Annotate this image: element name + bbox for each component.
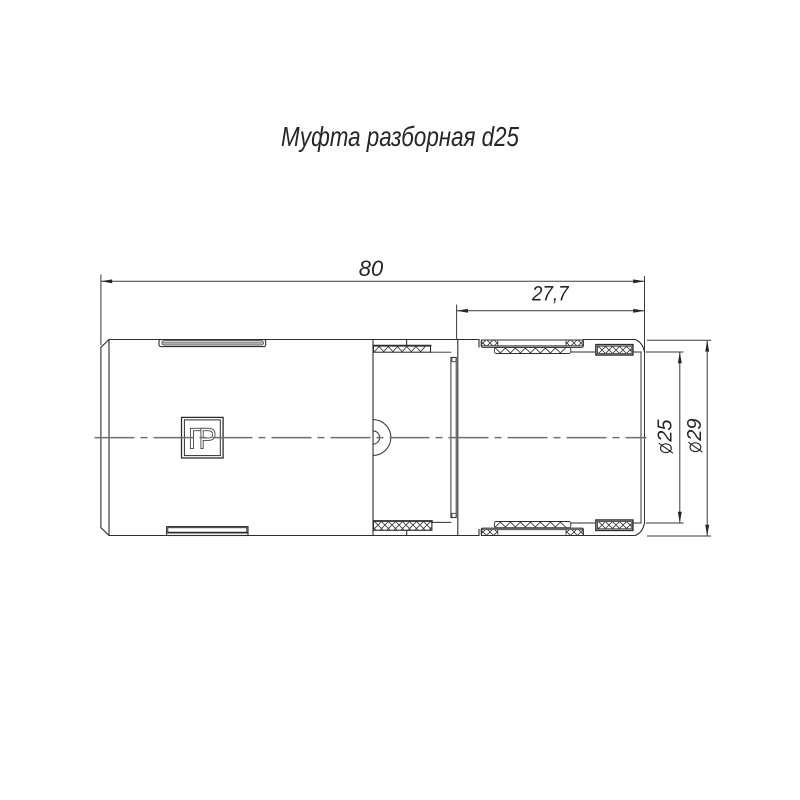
svg-text:25: 25 xyxy=(654,419,676,443)
svg-text:Муфта разборная d25: Муфта разборная d25 xyxy=(281,121,520,152)
svg-text:80: 80 xyxy=(359,256,384,281)
svg-text:29: 29 xyxy=(684,418,706,441)
svg-text:27,7: 27,7 xyxy=(531,283,570,306)
